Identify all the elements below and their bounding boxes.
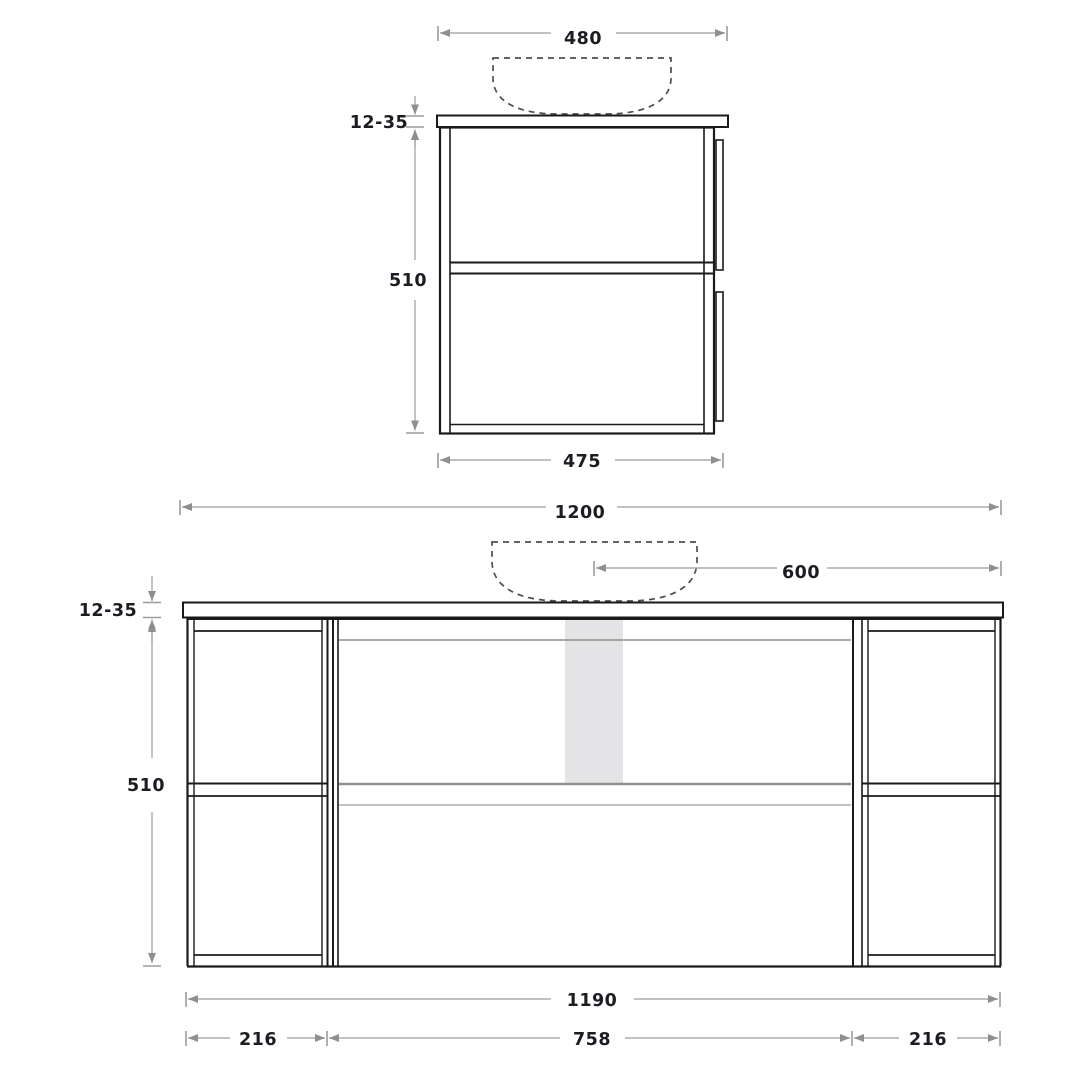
dim-label-510-side: 510 xyxy=(389,271,427,291)
dim-label-216-left: 216 xyxy=(239,1030,277,1050)
divider-right xyxy=(853,619,862,966)
side-view-drawing: 480 12-35 510 xyxy=(350,26,728,472)
drawer-front-edge-upper xyxy=(716,140,723,270)
dimension-total-width: 1200 xyxy=(180,500,1001,523)
dimension-height-front: 510 xyxy=(127,622,165,966)
front-view-drawing: 1200 600 xyxy=(79,500,1003,1050)
dim-label-600: 600 xyxy=(782,563,820,583)
right-cabinet xyxy=(862,618,1001,966)
divider-left xyxy=(333,619,338,966)
left-cabinet xyxy=(188,618,328,966)
cabinet-side-outline xyxy=(440,128,714,434)
technical-drawing-page: 480 12-35 510 xyxy=(0,0,1080,1080)
countertop-front xyxy=(183,603,1003,618)
dimension-bottom-depth: 475 xyxy=(438,452,723,472)
dim-label-510-front: 510 xyxy=(127,776,165,796)
dim-label-12-35-front: 12-35 xyxy=(79,601,137,621)
dim-label-1200: 1200 xyxy=(555,503,606,523)
vanity-dimension-diagram: 480 12-35 510 xyxy=(0,0,1080,1080)
dim-label-758: 758 xyxy=(573,1030,611,1050)
dimension-height-side: 510 xyxy=(389,130,427,433)
dim-label-475: 475 xyxy=(563,452,601,472)
dimension-counter-thickness-front: 12-35 xyxy=(79,576,161,643)
dimension-basin-to-edge: 600 xyxy=(594,561,1001,583)
dim-label-1190: 1190 xyxy=(567,991,618,1011)
basin-dashed-outline-side xyxy=(493,58,671,114)
dimension-top-width: 480 xyxy=(438,26,727,49)
waste-pipe-shaded-strip xyxy=(565,620,623,784)
dimension-section-widths: 216 758 216 xyxy=(186,1030,1000,1050)
dimension-cabinet-width: 1190 xyxy=(186,991,1000,1011)
dim-label-12-35-side: 12-35 xyxy=(350,113,408,133)
cabinet-side-body xyxy=(440,128,723,434)
countertop-side xyxy=(437,116,728,128)
dim-label-480: 480 xyxy=(564,29,602,49)
dimension-counter-thickness-side: 12-35 xyxy=(350,96,424,148)
drawer-front-edge-lower xyxy=(716,292,723,421)
dim-label-216-right: 216 xyxy=(909,1030,947,1050)
